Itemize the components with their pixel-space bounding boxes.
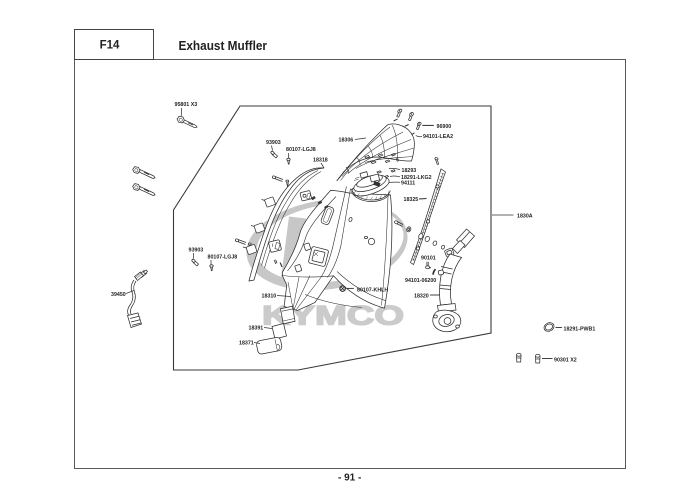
svg-text:96900: 96900 (437, 124, 452, 130)
svg-text:1830A: 1830A (517, 214, 533, 220)
svg-text:18320: 18320 (414, 294, 429, 300)
svg-text:Exhaust Muffler: Exhaust Muffler (179, 38, 268, 53)
svg-text:18310: 18310 (262, 294, 277, 300)
svg-text:18306: 18306 (339, 138, 354, 144)
svg-text:95801 X3: 95801 X3 (175, 102, 198, 108)
svg-text:94101-LEA2: 94101-LEA2 (423, 134, 453, 140)
svg-text:18391: 18391 (249, 326, 264, 332)
svg-text:18291-PWB1: 18291-PWB1 (564, 327, 596, 333)
svg-text:18325: 18325 (404, 197, 419, 203)
svg-text:80107-LGJ8: 80107-LGJ8 (286, 147, 316, 153)
svg-text:94101-06200: 94101-06200 (405, 278, 436, 284)
svg-text:18293: 18293 (402, 168, 417, 174)
svg-text:F14: F14 (100, 39, 120, 51)
svg-text:80107-LGJ8: 80107-LGJ8 (208, 255, 238, 261)
svg-text:- 91 -: - 91 - (338, 473, 361, 484)
svg-text:90301 X2: 90301 X2 (554, 358, 577, 364)
svg-text:93903: 93903 (266, 140, 281, 146)
svg-text:93903: 93903 (189, 248, 204, 254)
svg-text:18371: 18371 (239, 341, 254, 347)
svg-text:94111: 94111 (401, 181, 415, 187)
svg-text:18318: 18318 (313, 158, 328, 164)
svg-text:80107-KHLH: 80107-KHLH (357, 287, 388, 293)
svg-text:39450: 39450 (111, 292, 126, 298)
svg-text:90101: 90101 (421, 256, 436, 262)
